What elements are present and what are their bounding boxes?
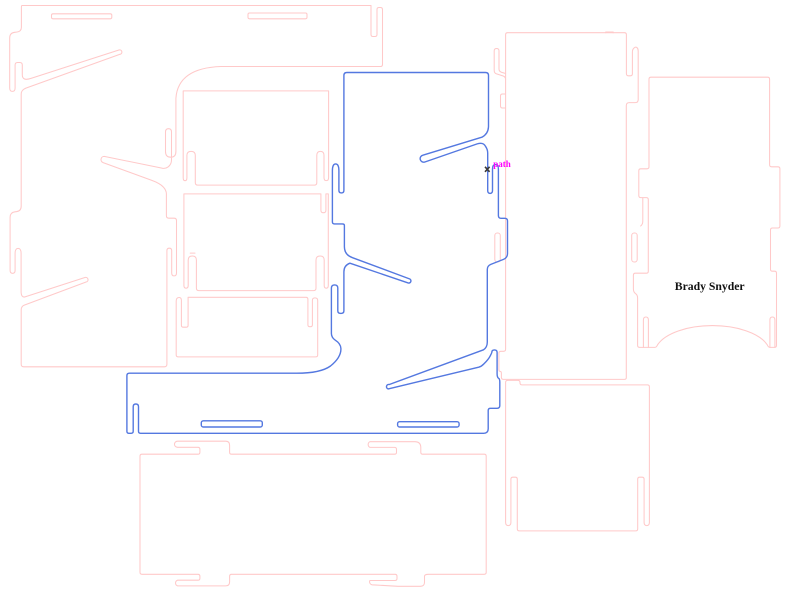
- svg-text:Brady Snyder: Brady Snyder: [675, 280, 745, 293]
- svg-text:path: path: [493, 159, 511, 169]
